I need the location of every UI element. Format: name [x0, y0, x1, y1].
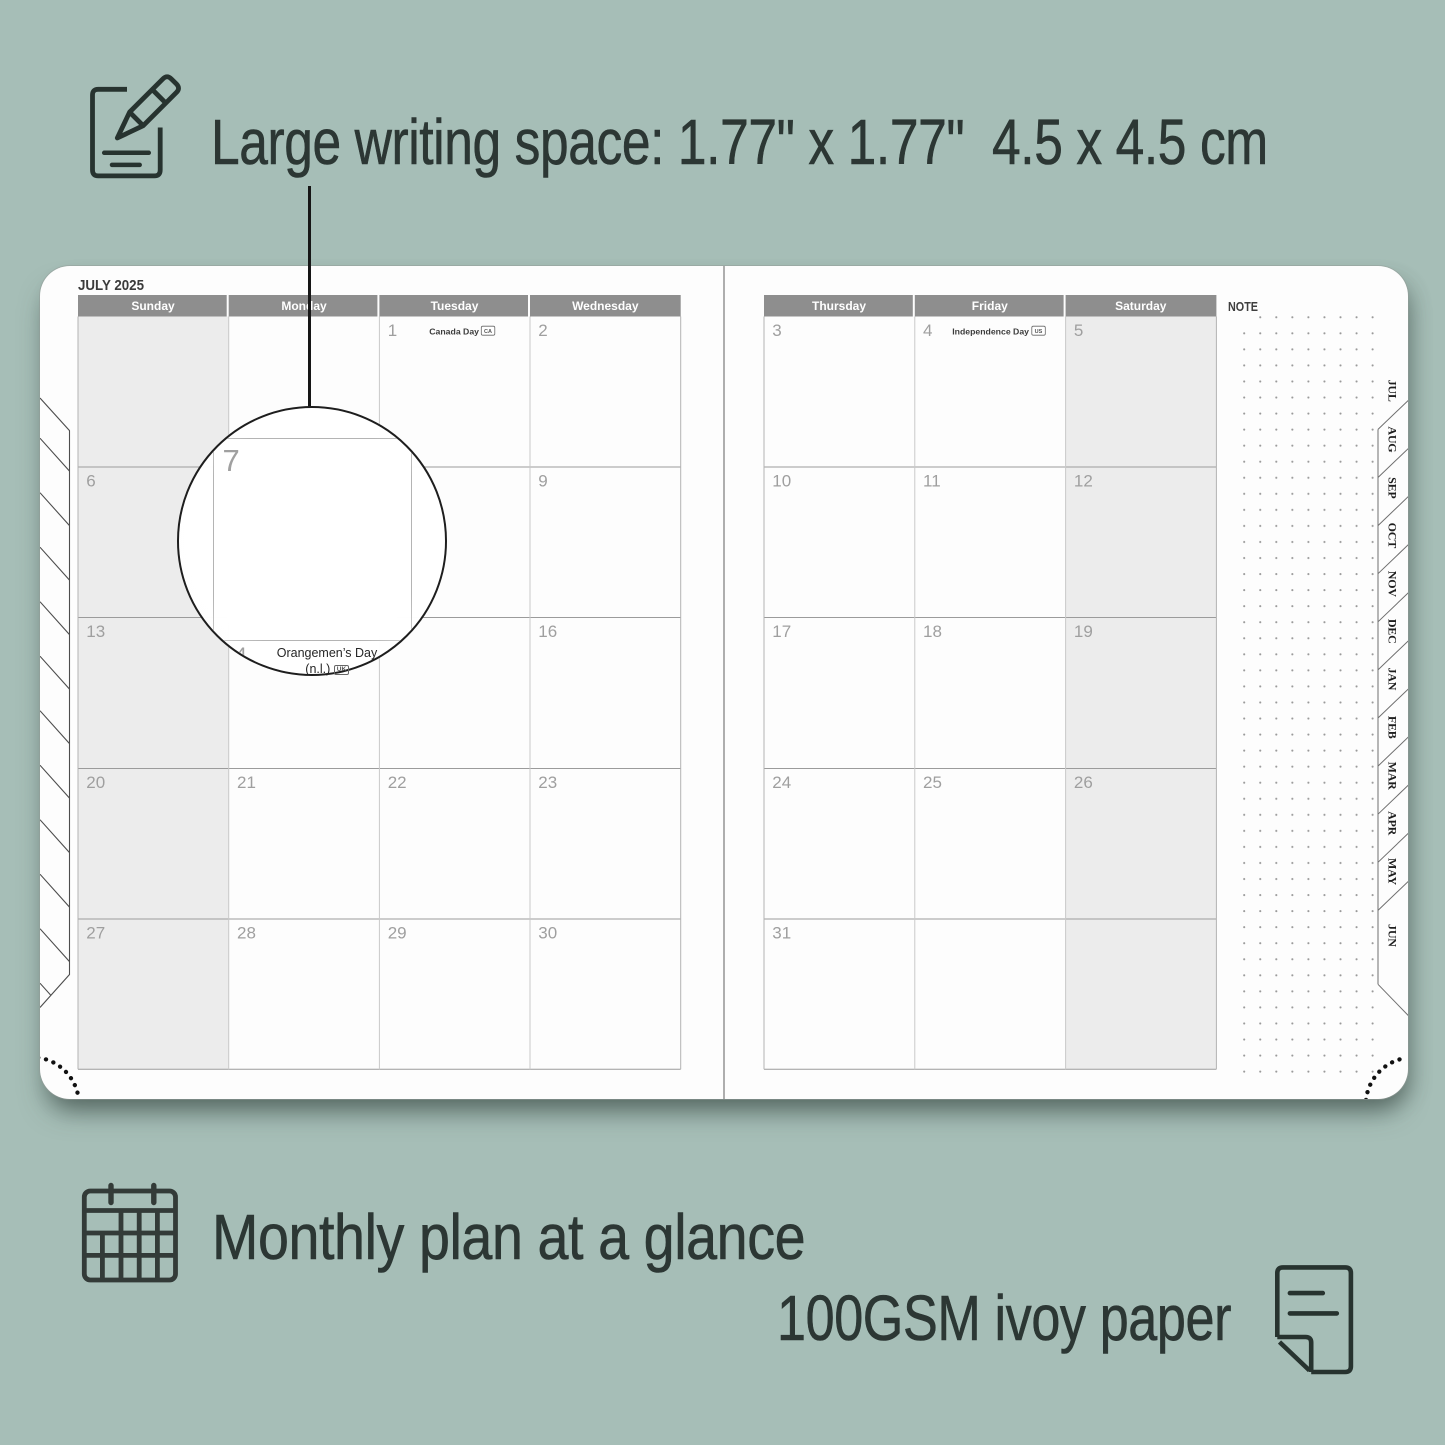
svg-text:JUN: JUN: [1386, 924, 1400, 947]
svg-text:Monday: Monday: [281, 299, 327, 313]
svg-text:6: 6: [86, 472, 95, 491]
svg-text:9: 9: [538, 472, 547, 491]
svg-text:1: 1: [388, 321, 397, 340]
svg-text:23: 23: [538, 773, 557, 792]
svg-text:MAY: MAY: [1386, 858, 1400, 885]
svg-text:17: 17: [772, 622, 791, 641]
svg-text:Sunday: Sunday: [131, 299, 175, 313]
svg-text:18: 18: [923, 622, 942, 641]
svg-text:3: 3: [772, 321, 781, 340]
svg-text:DEC: DEC: [1386, 619, 1400, 644]
svg-text:20: 20: [86, 773, 105, 792]
svg-text:13: 13: [86, 622, 105, 641]
svg-text:CA: CA: [484, 329, 492, 335]
svg-text:FEB: FEB: [1386, 716, 1400, 739]
svg-text:SEP: SEP: [1386, 477, 1400, 498]
svg-text:Canada Day: Canada Day: [429, 327, 479, 337]
svg-text:26: 26: [1074, 773, 1093, 792]
svg-text:Friday: Friday: [972, 299, 1008, 313]
svg-text:25: 25: [923, 773, 942, 792]
svg-text:JULY 2025: JULY 2025: [78, 278, 144, 294]
svg-text:Thursday: Thursday: [812, 299, 866, 313]
svg-text:Wednesday: Wednesday: [572, 299, 639, 313]
svg-text:27: 27: [86, 924, 105, 943]
svg-text:JAN: JAN: [1386, 667, 1400, 690]
svg-text:24: 24: [772, 773, 791, 792]
svg-text:OCT: OCT: [1386, 523, 1400, 549]
svg-text:19: 19: [1074, 622, 1093, 641]
svg-text:22: 22: [388, 773, 407, 792]
svg-text:NOV: NOV: [1386, 571, 1400, 598]
svg-text:10: 10: [772, 472, 791, 491]
svg-text:11: 11: [923, 472, 941, 491]
svg-text:Independence Day: Independence Day: [952, 327, 1029, 337]
svg-text:30: 30: [538, 924, 557, 943]
svg-text:31: 31: [772, 924, 791, 943]
svg-text:16: 16: [538, 622, 557, 641]
svg-text:JUL: JUL: [1386, 380, 1400, 402]
svg-text:4: 4: [923, 321, 932, 340]
svg-text:MAR: MAR: [1386, 762, 1400, 791]
svg-text:APR: APR: [1386, 811, 1400, 836]
svg-text:US: US: [1035, 329, 1043, 335]
svg-text:NOTE: NOTE: [1228, 299, 1258, 314]
svg-text:2: 2: [538, 321, 547, 340]
svg-text:Tuesday: Tuesday: [431, 299, 479, 313]
svg-text:29: 29: [388, 924, 407, 943]
svg-text:28: 28: [237, 924, 256, 943]
svg-text:Saturday: Saturday: [1115, 299, 1167, 313]
svg-text:21: 21: [237, 773, 256, 792]
svg-text:5: 5: [1074, 321, 1083, 340]
svg-text:AUG: AUG: [1386, 426, 1400, 452]
svg-text:12: 12: [1074, 472, 1093, 491]
